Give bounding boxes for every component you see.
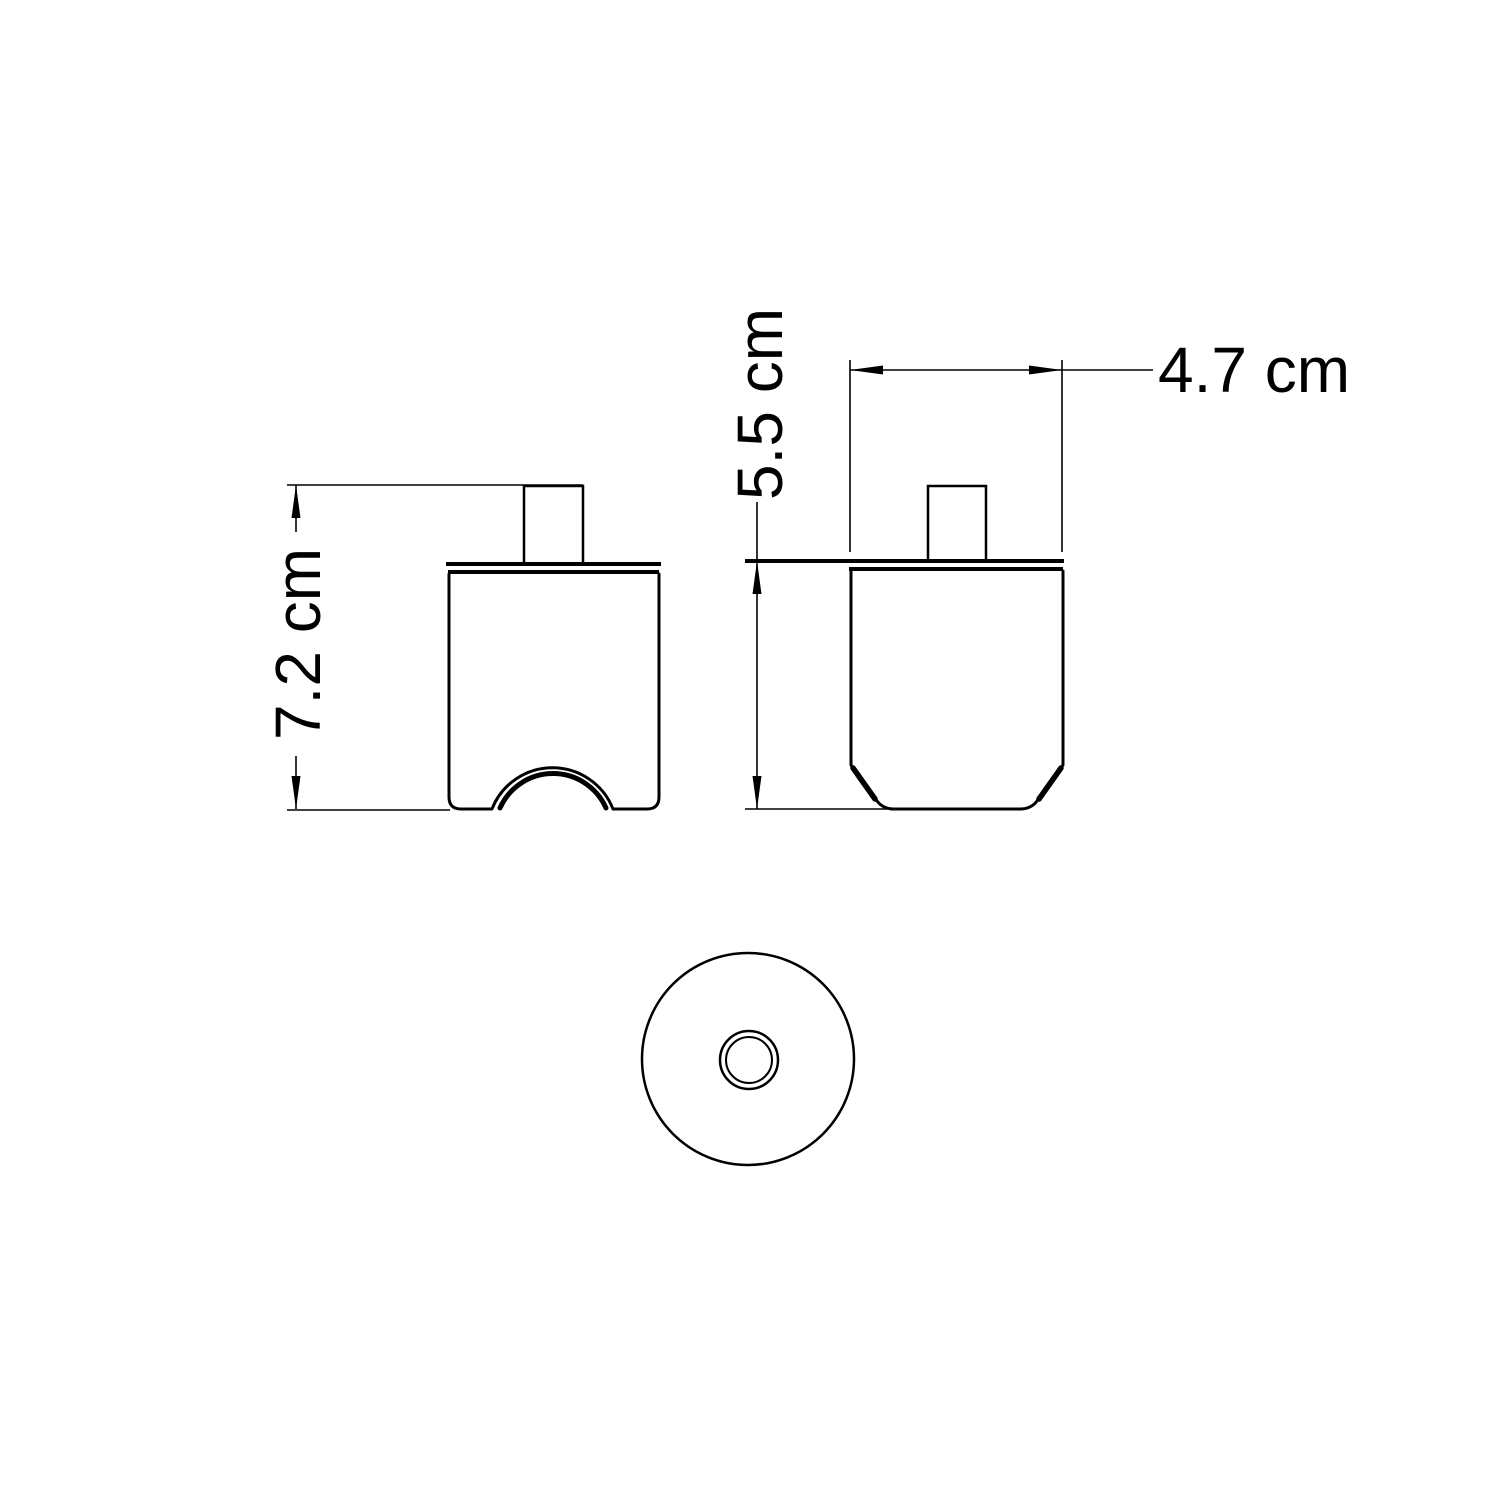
drawing-canvas: 7.2 cm 4.7 cm [0, 0, 1500, 1500]
side-width-label: 4.7 cm [1158, 334, 1350, 406]
side-width-arrow-right [1029, 366, 1062, 375]
side-body-outline [851, 571, 1063, 809]
side-height-dimension: 5.5 cm [724, 308, 900, 809]
bottom-hole-outer-circle [720, 1031, 778, 1089]
bottom-view [642, 953, 854, 1165]
front-stem [524, 486, 583, 566]
bottom-hole-inner-circle [726, 1037, 772, 1083]
side-chamfer-left [853, 768, 875, 799]
side-height-arrow-down [753, 776, 762, 809]
technical-drawing-svg: 7.2 cm 4.7 cm [0, 0, 1500, 1500]
side-height-arrow-up [753, 561, 762, 594]
side-width-dimension: 4.7 cm [850, 334, 1350, 552]
front-view [446, 486, 661, 809]
side-stem [928, 486, 986, 563]
side-width-arrow-left [850, 366, 883, 375]
front-height-arrow-up [292, 485, 301, 518]
side-view [745, 486, 1064, 809]
front-height-label: 7.2 cm [262, 548, 334, 740]
side-height-label: 5.5 cm [724, 308, 796, 500]
side-chamfer-right [1039, 768, 1061, 799]
bottom-outer-circle [642, 953, 854, 1165]
front-height-arrow-down [292, 776, 301, 809]
front-height-dimension: 7.2 cm [262, 485, 583, 810]
